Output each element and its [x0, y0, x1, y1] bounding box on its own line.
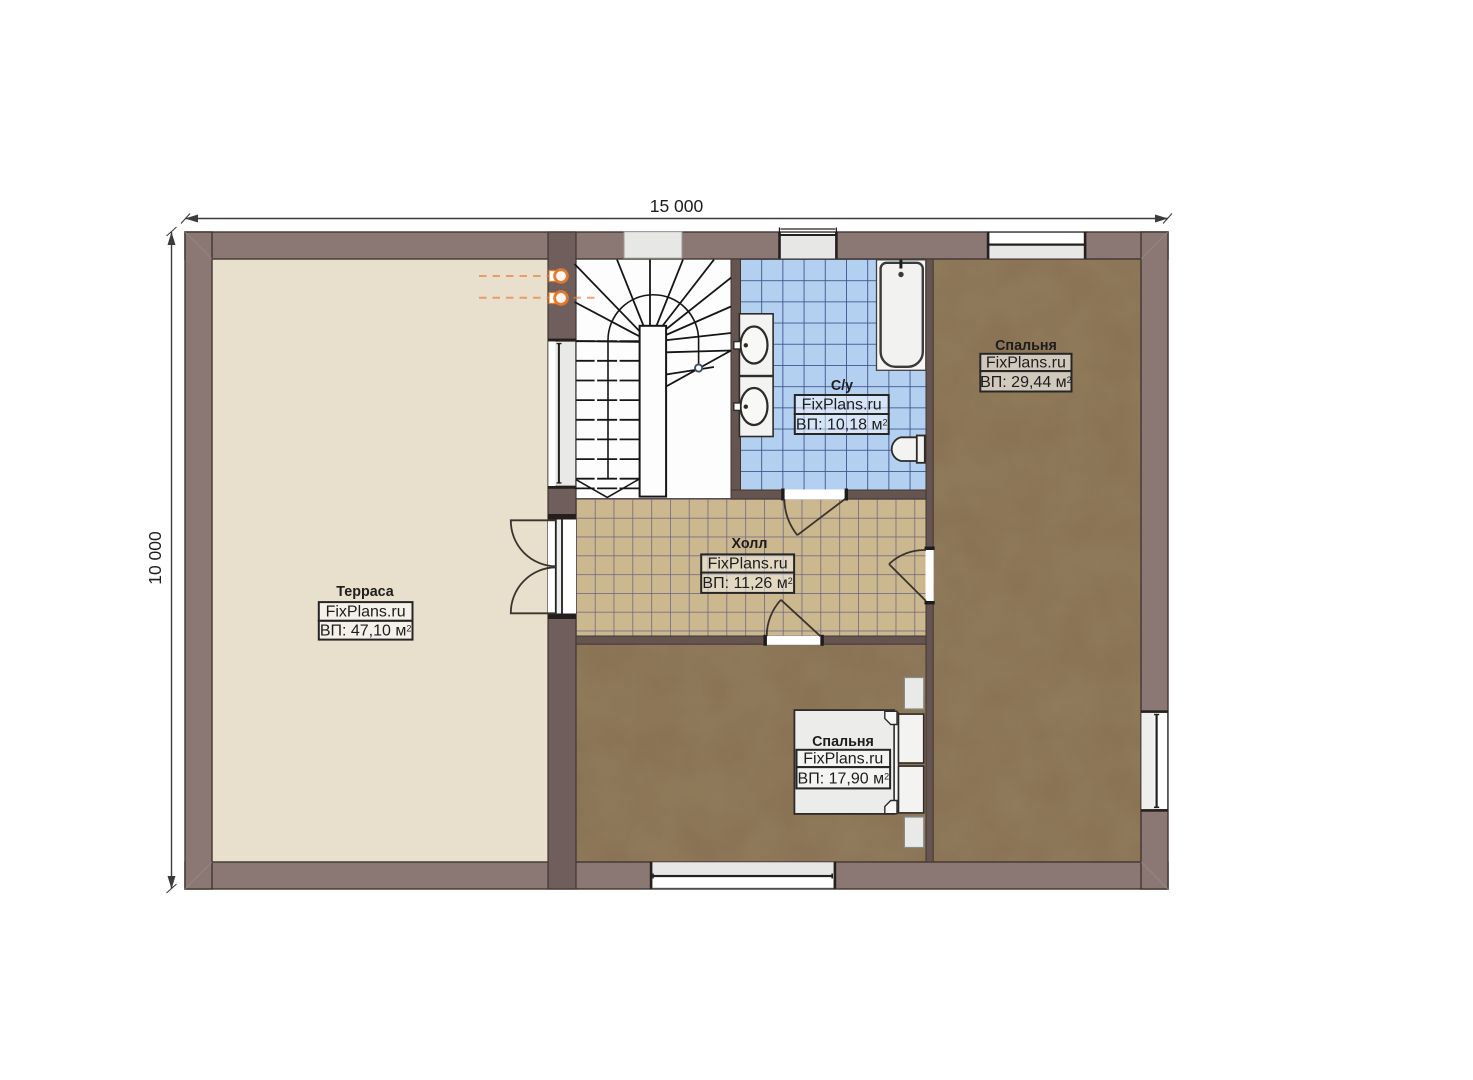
svg-text:ВП: 10,18 м2: ВП: 10,18 м2 — [796, 416, 888, 433]
svg-text:ВП: 11,26 м2: ВП: 11,26 м2 — [702, 575, 792, 592]
svg-text:Холл: Холл — [732, 536, 768, 552]
svg-text:Терраса: Терраса — [336, 584, 395, 600]
svg-text:FixPlans.ru: FixPlans.ru — [708, 555, 788, 572]
svg-text:ВП: 47,10 м2: ВП: 47,10 м2 — [320, 622, 412, 639]
svg-text:ВП: 29,44 м2: ВП: 29,44 м2 — [980, 374, 1072, 391]
svg-text:ВП: 17,90 м2: ВП: 17,90 м2 — [798, 770, 890, 787]
svg-text:С/у: С/у — [831, 378, 853, 394]
svg-text:15 000: 15 000 — [650, 196, 704, 216]
svg-text:10 000: 10 000 — [145, 531, 165, 585]
svg-text:FixPlans.ru: FixPlans.ru — [326, 603, 406, 620]
svg-text:FixPlans.ru: FixPlans.ru — [986, 355, 1066, 372]
svg-text:Спальня: Спальня — [812, 734, 874, 750]
svg-text:FixPlans.ru: FixPlans.ru — [803, 751, 883, 768]
svg-text:FixPlans.ru: FixPlans.ru — [802, 397, 882, 414]
svg-text:Спальня: Спальня — [995, 338, 1057, 354]
